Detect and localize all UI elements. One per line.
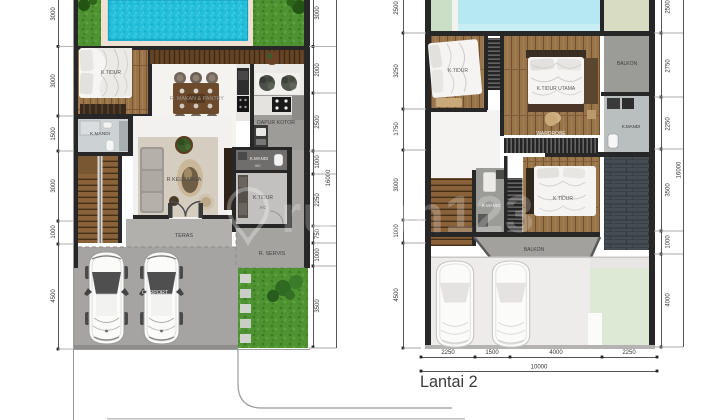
svg-text:1500: 1500 (51, 127, 57, 141)
svg-text:R KELUARGA: R KELUARGA (167, 177, 202, 183)
svg-text:1750: 1750 (394, 122, 400, 136)
svg-text:3000: 3000 (315, 6, 321, 20)
svg-text:4000: 4000 (666, 293, 672, 307)
svg-text:4500: 4500 (394, 288, 400, 302)
svg-text:10000: 10000 (531, 365, 548, 371)
svg-text:4000: 4000 (549, 350, 563, 356)
svg-text:K.TIDUR: K.TIDUR (101, 70, 121, 76)
svg-text:DAPUR KOTOR: DAPUR KOTOR (257, 120, 295, 126)
svg-text:WARDROBE: WARDROBE (536, 131, 566, 137)
svg-text:K.MANDI: K.MANDI (250, 156, 268, 161)
svg-text:16000: 16000 (677, 161, 683, 178)
svg-text:3500: 3500 (666, 183, 672, 197)
svg-text:TERAS: TERAS (175, 233, 193, 239)
svg-text:1000: 1000 (315, 155, 321, 169)
svg-text:2250: 2250 (622, 350, 636, 356)
svg-text:K.MANDI: K.MANDI (90, 131, 110, 137)
svg-text:2750: 2750 (666, 59, 672, 73)
svg-text:2500: 2500 (666, 0, 672, 14)
svg-text:BALKON: BALKON (524, 247, 545, 253)
svg-text:K.TIDUR: K.TIDUR (448, 68, 468, 74)
svg-text:BALKON: BALKON (617, 61, 638, 67)
svg-text:R. SERVIS: R. SERVIS (259, 251, 286, 257)
svg-text:1000: 1000 (315, 248, 321, 262)
svg-text:2500: 2500 (394, 1, 400, 15)
svg-text:3500: 3500 (315, 299, 321, 313)
svg-text:Lantai 2: Lantai 2 (420, 373, 478, 391)
svg-text:16000: 16000 (326, 169, 332, 186)
svg-text:K.TIDUR: K.TIDUR (553, 196, 573, 202)
svg-text:2000: 2000 (315, 63, 321, 77)
svg-text:1000: 1000 (666, 235, 672, 249)
svg-text:2250: 2250 (666, 117, 672, 131)
svg-text:1500: 1500 (485, 350, 499, 356)
svg-text:2500: 2500 (315, 115, 321, 129)
svg-text:R. MAKAN & PANTRY: R. MAKAN & PANTRY (170, 96, 224, 102)
svg-text:4500: 4500 (51, 289, 57, 303)
svg-text:CARPORT: CARPORT (142, 290, 169, 296)
svg-text:K.TIDUR UTAMA: K.TIDUR UTAMA (537, 86, 576, 92)
svg-text:3000: 3000 (51, 179, 57, 193)
svg-text:2250: 2250 (441, 350, 455, 356)
svg-text:3250: 3250 (394, 64, 400, 78)
svg-text:rumah123: rumah123 (281, 186, 535, 244)
svg-text:3000: 3000 (51, 74, 57, 88)
svg-text:3000: 3000 (51, 7, 57, 21)
svg-text:K.MANDI: K.MANDI (622, 124, 640, 129)
svg-text:1000: 1000 (51, 225, 57, 239)
svg-text:WC: WC (255, 164, 262, 168)
